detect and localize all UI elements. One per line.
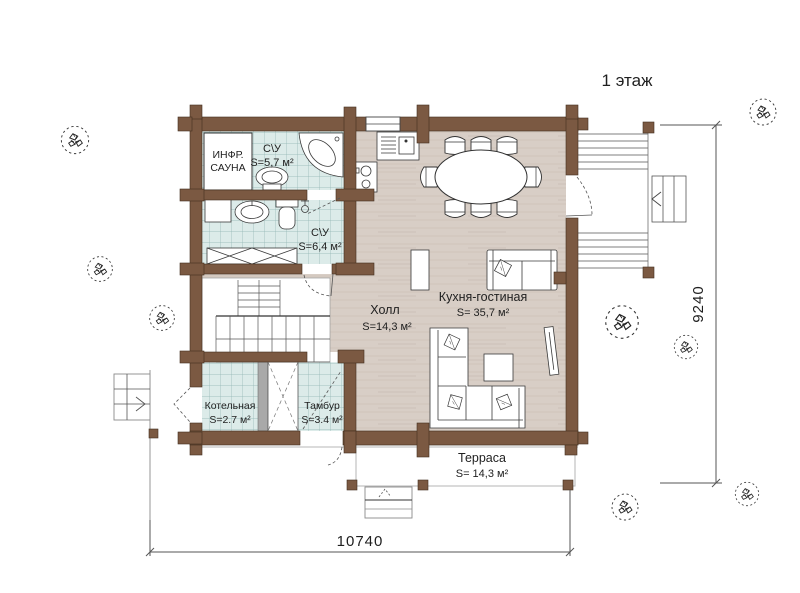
door-swing [174,388,190,422]
toilet [276,198,298,229]
room-area-hall: S=14,3 м² [362,321,412,333]
plan-title: 1 этаж [602,71,654,90]
right-deck [578,122,686,278]
room-area-boiler: S=2.7 м² [209,414,251,426]
kitchen-sink-unit [377,132,419,160]
tree-icon [606,306,639,339]
room-area-tambour: S=3.4 м² [301,414,343,426]
room-label-boiler: Котельная [205,400,256,412]
closet [207,248,297,264]
room-label-sauna-line2: САУНА [210,162,245,174]
door-swing [577,177,592,215]
room-label-terrace: Терраса [458,451,506,465]
coffee-table [484,354,513,381]
chair [445,137,465,155]
tree-icon [674,335,697,358]
room-label-sauna-line1: ИНФР. [212,149,243,161]
room-area-wc2: S=6,4 м² [298,241,342,253]
room-label-hall: Холл [370,303,399,317]
window [366,117,400,131]
floor-plan-page: ИНФР. САУНА С\У S=5,7 м² С\У S=6,4 м² Хо… [0,0,800,593]
side-table [411,250,429,290]
ventilation-shaft [268,362,298,431]
tree-icon [150,306,175,331]
terrace-post [418,480,428,490]
staircase [202,278,330,362]
room-label-wc2: С\У [311,227,330,239]
chair [497,137,517,155]
deck-steps [652,176,686,222]
dimension-height-value: 9240 [690,285,707,322]
tree-icon [612,494,638,520]
dining-table [435,150,527,204]
tree-icon [61,126,88,153]
room-area-kitchen: S= 35,7 м² [457,307,510,319]
room-label-kitchen: Кухня-гостиная [439,290,527,304]
deck-post [643,267,654,278]
room-label-wc1: С\У [263,143,282,155]
washing-machine [205,198,231,222]
terrace-post [347,480,357,490]
terrace-post [563,480,573,490]
room-label-tambour: Тамбур [304,400,340,412]
room-area-terrace: S= 14,3 м² [456,468,509,480]
tree-icon [750,99,776,125]
chair [497,200,517,218]
tree-icon [88,257,113,282]
deck-post [643,122,654,133]
terrace-steps [365,487,412,518]
door-swing [328,447,342,465]
shaft-wall [258,362,268,431]
room-area-wc1: S=5,7 м² [250,157,294,169]
chair [445,200,465,218]
left-porch [114,370,158,553]
sink [235,201,269,223]
sofa-top [487,250,557,290]
cooktop [355,162,377,192]
dimension-width-value: 10740 [337,533,384,550]
floor-plan-drawing: ИНФР. САУНА С\У S=5,7 м² С\У S=6,4 м² Хо… [0,0,800,593]
pillow [448,395,463,410]
left-porch-steps [114,374,150,420]
tree-icon [735,482,758,505]
